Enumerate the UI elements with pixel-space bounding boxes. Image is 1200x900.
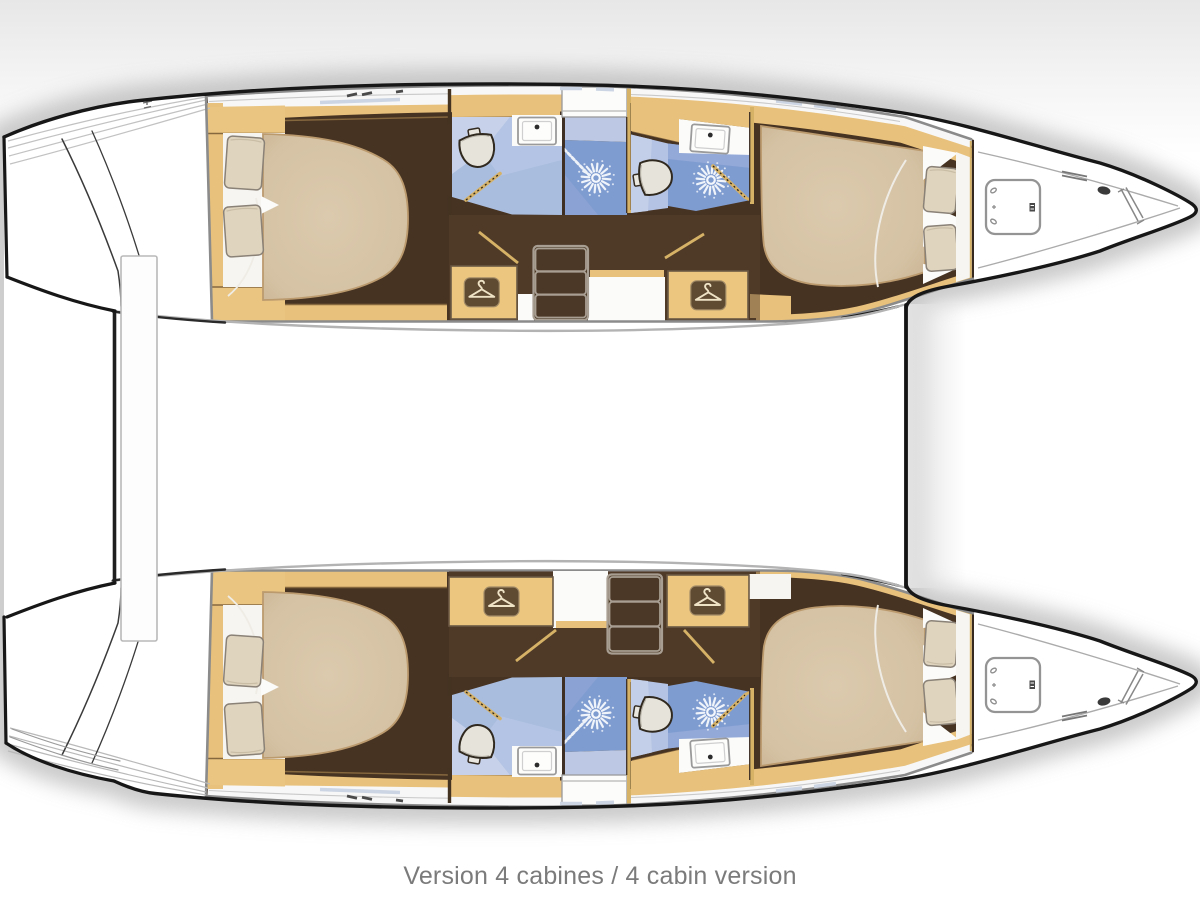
- svg-text:Version 4 cabines / 4 cabin ve: Version 4 cabines / 4 cabin version: [403, 862, 796, 890]
